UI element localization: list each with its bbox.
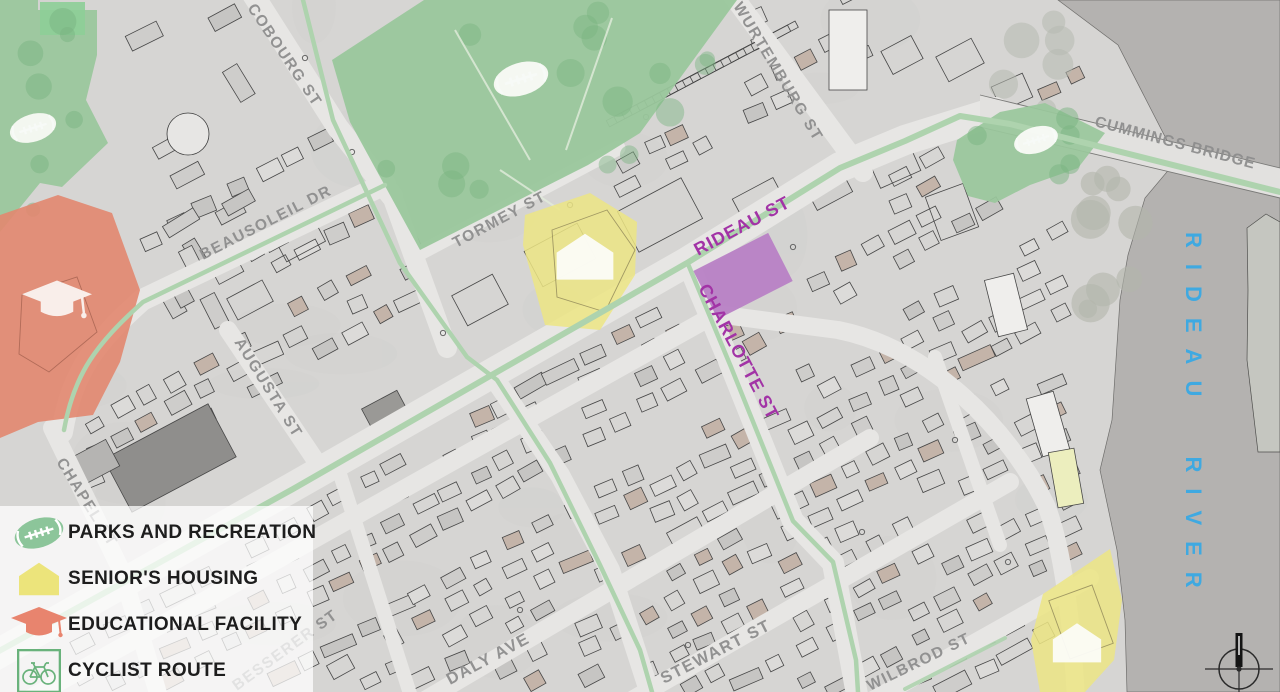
map-legend: PARKS AND RECREATION SENIOR'S HOUSING ED… (0, 506, 313, 692)
legend-item-educational: EDUCATIONAL FACILITY (10, 602, 313, 648)
legend-label: EDUCATIONAL FACILITY (68, 614, 302, 636)
river-label: RIDEAU RIVER (1181, 232, 1206, 604)
legend-label: PARKS AND RECREATION (68, 522, 316, 544)
legend-item-seniors-housing: SENIOR'S HOUSING (10, 556, 313, 602)
legend-item-parks: PARKS AND RECREATION (10, 510, 313, 556)
rugby-ball-icon (10, 513, 68, 553)
legend-label: SENIOR'S HOUSING (68, 568, 258, 590)
graduation-cap-icon (10, 604, 68, 646)
bicycle-icon (10, 649, 68, 692)
legend-label: CYCLIST ROUTE (68, 660, 226, 682)
planning-map: COBOURG ST BEAUSOLEIL DR TORMEY ST WURTE… (0, 0, 1280, 692)
legend-item-cyclist-route: CYCLIST ROUTE (10, 648, 313, 692)
circular-court (167, 113, 209, 155)
house-icon (10, 559, 68, 599)
